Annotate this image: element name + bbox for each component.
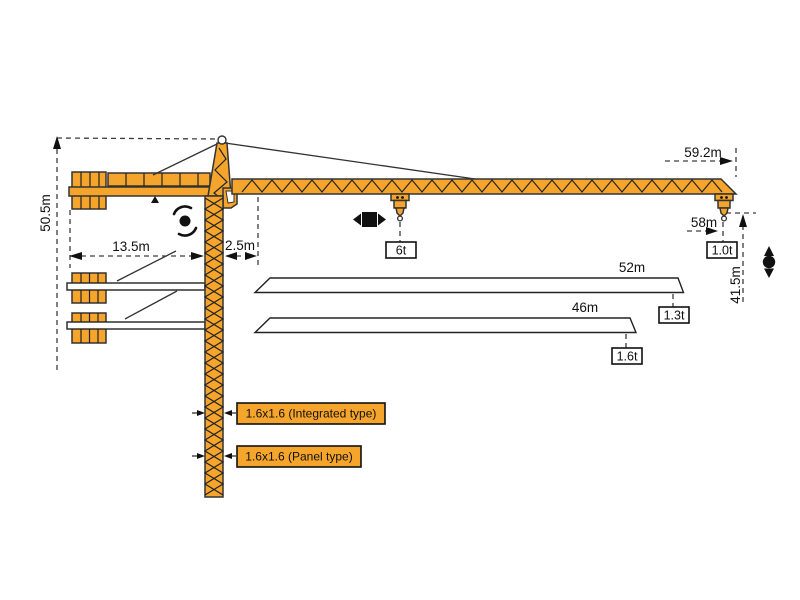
hoist-up-down-icon [763, 246, 775, 278]
apex-pin [218, 136, 226, 144]
mast-section-panel-label: 1.6x1.6 (Panel type) [245, 450, 352, 464]
crane-diagram: 50.5m [0, 0, 800, 600]
counterjib-platform [69, 187, 212, 196]
max-load-callout: 6t [386, 242, 416, 258]
hook-radius-dimension: 58m [687, 215, 718, 235]
tip-load-callout: 1.0t [707, 242, 737, 258]
jib-option-46m-label: 46m [572, 300, 598, 315]
jib-option-52m-tip-load: 1.3t [664, 309, 685, 323]
trolley-tip [715, 194, 733, 221]
assoc-line-2 [125, 291, 177, 319]
hook-radius-label: 58m [691, 215, 717, 230]
main-jib [232, 179, 736, 194]
max-load-label: 6t [396, 244, 407, 258]
trolley-main [391, 194, 409, 221]
alt-counterjib-bar-1 [67, 283, 205, 290]
counterjib-upper-beam [108, 173, 210, 186]
slewing-rotation-icon [174, 206, 196, 235]
jib-radius-dimension: 59.2m [665, 145, 736, 177]
tower-mast [205, 196, 223, 497]
pendant-anchor-marker [151, 196, 159, 203]
jib-option-52m-label: 52m [619, 260, 645, 275]
counterjib [69, 172, 212, 209]
jib-radius-label: 59.2m [684, 145, 722, 160]
pendant-right [225, 143, 482, 180]
tip-load-label: 1.0t [712, 244, 733, 258]
pendant-left [153, 143, 219, 175]
crane-diagram-canvas: 50.5m [0, 0, 800, 600]
mast-section-integrated-label: 1.6x1.6 (Integrated type) [246, 407, 377, 421]
hook-height-label: 41.5m [728, 266, 743, 304]
alt-counterjib-bar-2 [67, 322, 205, 329]
hook-height-dimension: 41.5m [726, 213, 756, 305]
jib-option-46m: 46m 1.6t [255, 300, 642, 364]
counterjib-radius-label: 13.5m [112, 239, 150, 254]
jib-option-46m-tip-load: 1.6t [617, 350, 638, 364]
overall-height-label: 50.5m [38, 194, 53, 232]
jib-option-52m: 52m 1.3t [255, 260, 689, 323]
trolley-travel-icon [353, 212, 386, 227]
root-offset-label: 2.5m [225, 238, 255, 253]
